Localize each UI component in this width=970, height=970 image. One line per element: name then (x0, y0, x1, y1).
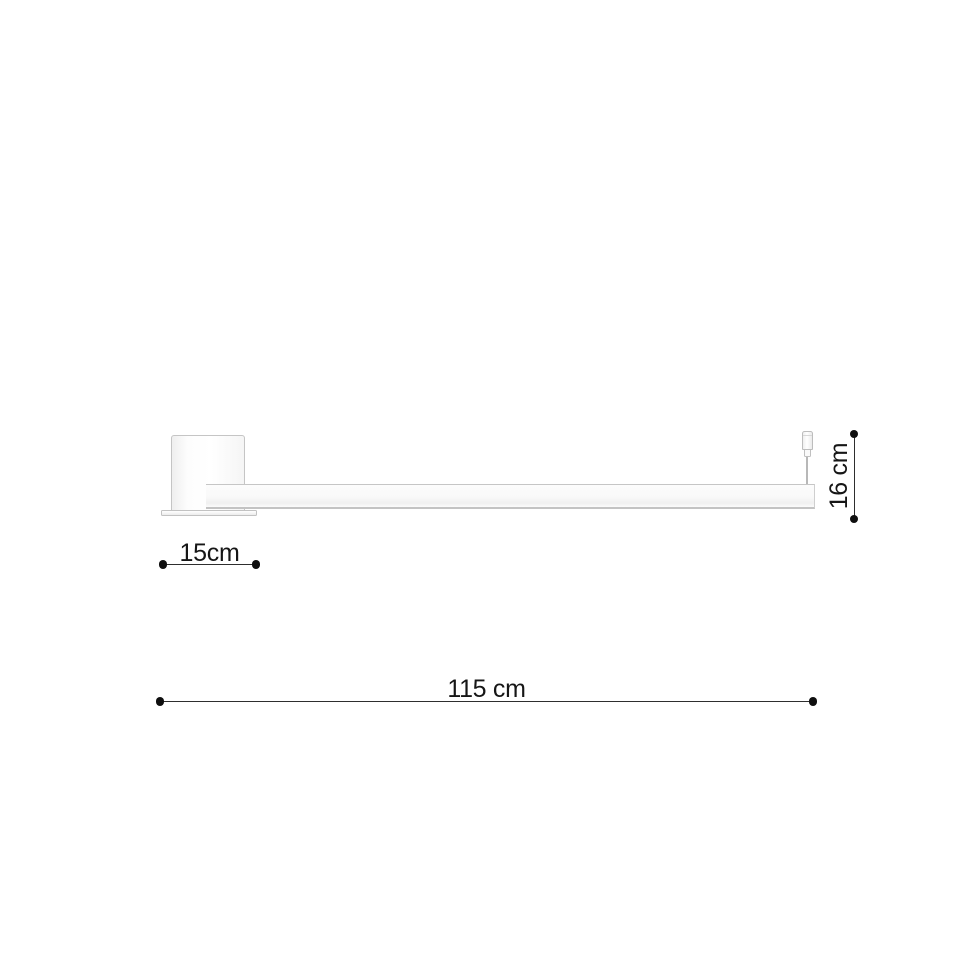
power-connector-rim (803, 435, 813, 436)
dimension-label-plate-width: 15cm (163, 541, 256, 566)
power-connector-neck (804, 450, 811, 457)
dimension-line-fixture-height (854, 434, 855, 519)
linear-light-bar (206, 484, 815, 509)
power-connector (802, 431, 814, 450)
power-wire (806, 454, 808, 486)
mounting-base-plate (161, 510, 257, 516)
dimension-label-fixture-length: 115 cm (160, 677, 813, 702)
dimension-label-fixture-height: 16 cm (825, 426, 853, 526)
lamp-dimension-diagram: 15cm 16 cm 115 cm (0, 0, 970, 970)
